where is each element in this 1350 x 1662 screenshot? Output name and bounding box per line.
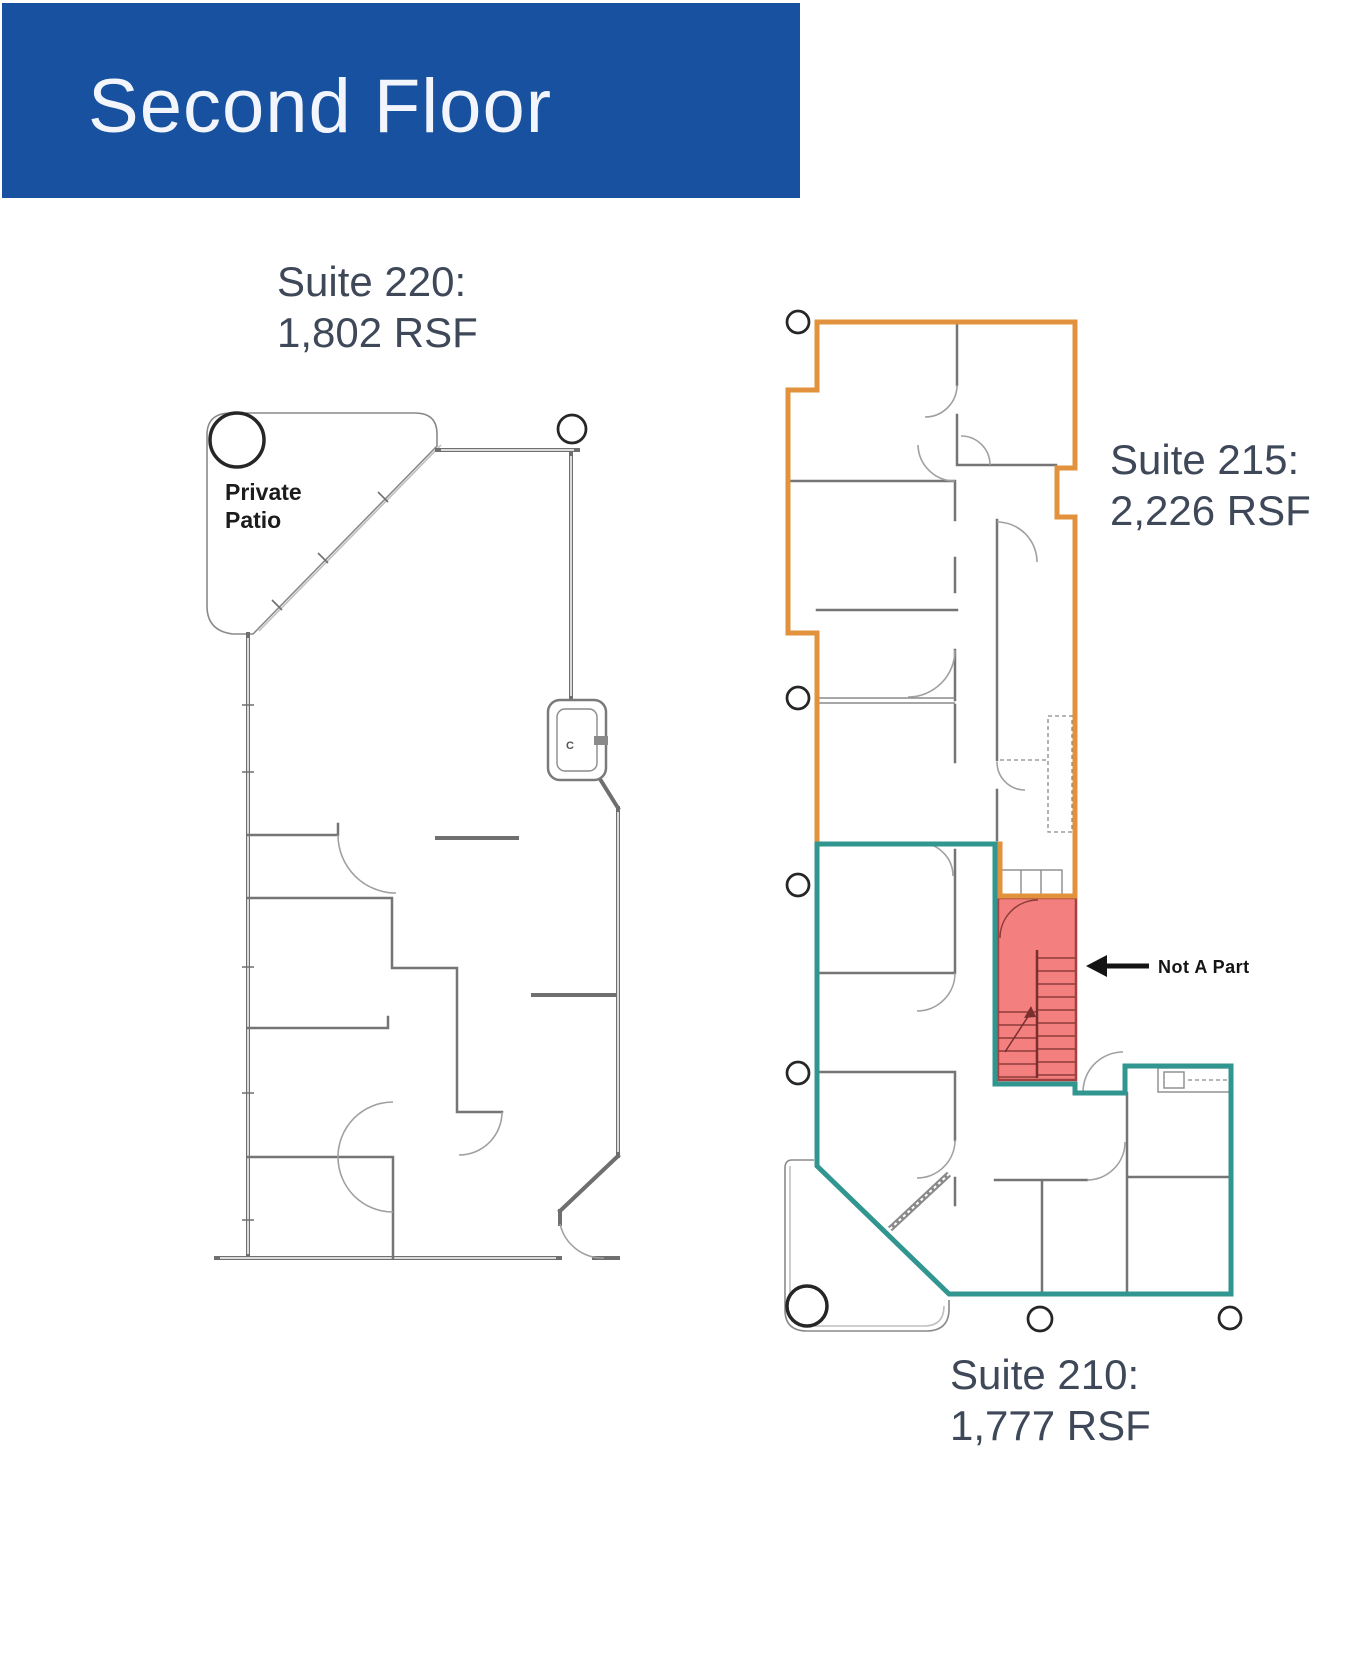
column-marker-icon	[787, 874, 809, 896]
suite-220-outer-walls	[216, 450, 618, 1258]
arrow-shaft	[1104, 964, 1149, 969]
floor-plan-suites-215-210: Not A Part Suite 215: 2,226 RSF Suite 21…	[785, 311, 1311, 1449]
column-marker-icon	[210, 413, 264, 467]
suite-210-area: 1,777 RSF	[950, 1402, 1151, 1449]
excluded-stairwell	[998, 898, 1076, 1080]
column-marker-icon	[1219, 1307, 1241, 1329]
left-arrow-icon	[1086, 955, 1107, 977]
private-patio-line1: Private	[225, 479, 302, 505]
floor-plan-suite-220: Suite 220: 1,802 RSF	[207, 258, 618, 1258]
column-marker-icon	[787, 687, 809, 709]
column-marker-icon	[558, 415, 586, 443]
column-marker-icon	[787, 1286, 827, 1326]
not-a-part-label: Not A Part	[1158, 957, 1250, 977]
suite-220-area: 1,802 RSF	[277, 309, 478, 356]
not-a-part-annotation: Not A Part	[1086, 955, 1250, 977]
suite-220-label: Suite 220: 1,802 RSF	[277, 258, 478, 356]
c-fixture-label: C	[566, 740, 574, 752]
suite-215-label: Suite 215: 2,226 RSF	[1110, 436, 1311, 534]
private-patio-label: Private Patio	[225, 479, 302, 533]
column-marker-icon	[787, 1062, 809, 1084]
floor-plan-page: Second Floor Suite 220: 1,802 RSF	[0, 0, 1350, 1662]
suite-210-title: Suite 210:	[950, 1351, 1139, 1398]
hatched-wall	[890, 1174, 949, 1229]
annex-counter-fixture	[1158, 1068, 1230, 1092]
restroom-fixtures	[1000, 716, 1072, 896]
suite-210-label: Suite 210: 1,777 RSF	[950, 1351, 1151, 1449]
header-banner: Second Floor	[2, 3, 800, 198]
column-marker-icon	[787, 311, 809, 333]
suite-215-area: 2,226 RSF	[1110, 487, 1311, 534]
page-title: Second Floor	[88, 64, 552, 149]
private-patio-line2: Patio	[225, 507, 281, 533]
c-fixture: C	[548, 700, 608, 780]
second-floor-diagram: Second Floor Suite 220: 1,802 RSF	[0, 0, 1350, 1662]
suite-215-title: Suite 215:	[1110, 436, 1299, 483]
suite-220-title: Suite 220:	[277, 258, 466, 305]
column-marker-icon	[1028, 1307, 1052, 1331]
